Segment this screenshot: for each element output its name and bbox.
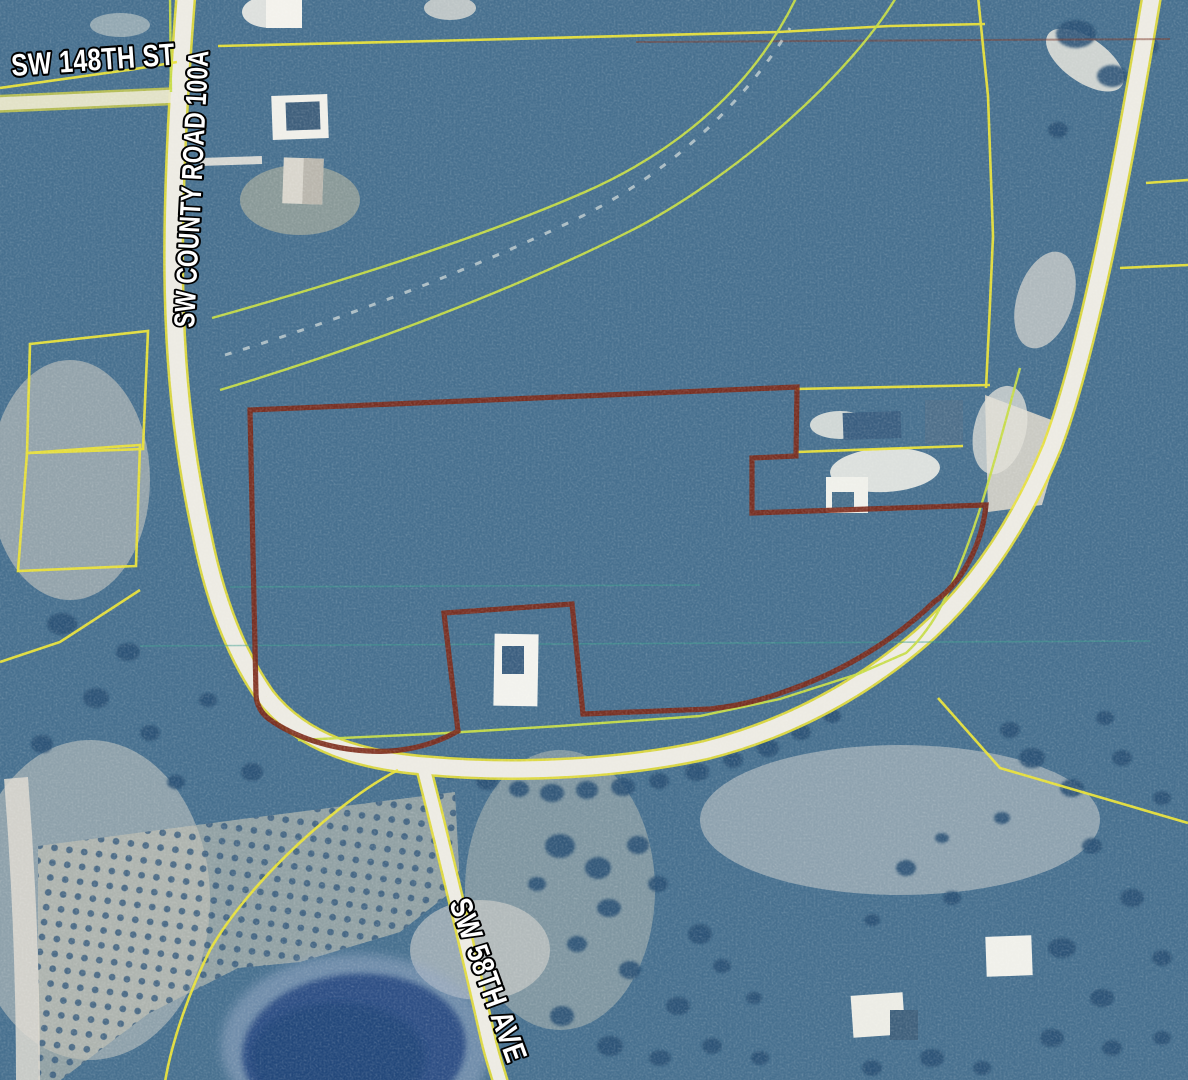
aerial-map-container: SW 148TH ST SW COUNTY ROAD 100A SW 58TH … — [0, 0, 1188, 1080]
aerial-map: SW 148TH ST SW COUNTY ROAD 100A SW 58TH … — [0, 0, 1188, 1080]
